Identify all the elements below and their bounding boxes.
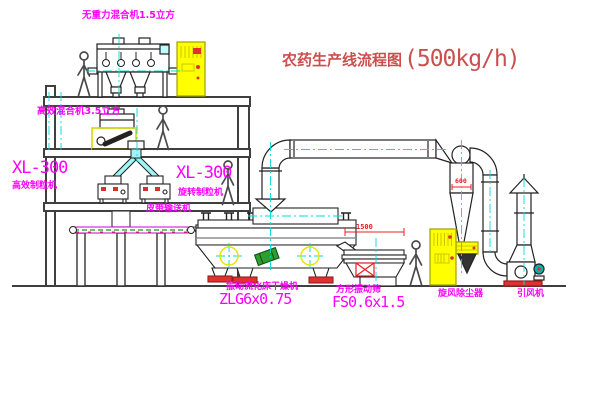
cyclone-separator [450,146,507,276]
label-dryer-model: ZLG6x0.75 [219,292,291,307]
control-cabinet-top [177,42,205,96]
label-top-mixer: 无重力混合机1.5立方 [82,11,175,21]
belt-conveyor [70,227,214,287]
title-capacity: (500kg/h) [404,46,520,72]
top-mixer-machine [88,38,178,97]
label-granulator-left-name: 高效制粒机 [12,182,57,191]
label-granulator-mid-model: XL-300 [176,165,231,182]
fluid-bed-dryer [196,208,356,283]
label-cyclone: 旋风除尘器 [438,290,483,299]
pesticide-line-flow-diagram: 农药生产线流程图 (500kg/h) 无重力混合机1.5立方 高效混合机3.5立… [0,0,600,403]
exhaust-ductwork [256,140,452,212]
dimension-cyclone-body: 600 [455,178,467,185]
dimension-sieve-length: 1500 [356,224,373,231]
label-fan: 引风机 [517,290,544,299]
title-text: 农药生产线流程图 [282,49,402,70]
label-granulator-mid-name: 旋转制粒机 [178,189,223,198]
control-cabinet-fan [430,229,456,285]
granulator-machines [98,176,170,203]
label-second-mixer: 高效混合机3.5立方 [37,107,120,117]
label-granulator-left-model: XL-300 [12,160,67,177]
diagram-title: 农药生产线流程图 (500kg/h) [282,46,520,72]
label-belt-conveyor: 皮带输送机 [146,205,191,214]
label-sieve-model: FS0.6x1.5 [332,295,404,310]
